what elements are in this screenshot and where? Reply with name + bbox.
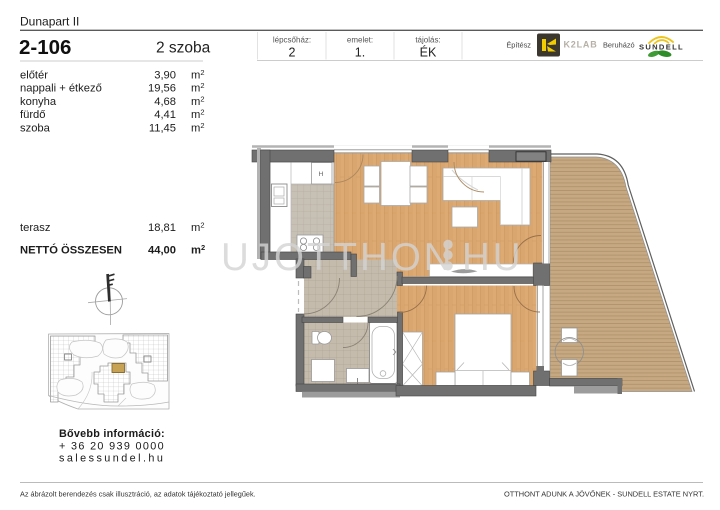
svg-text:OTTHONT ADUNK A JÖVŐNEK - SUND: OTTHONT ADUNK A JÖVŐNEK - SUNDELL ESTATE… xyxy=(504,490,704,499)
svg-text:UJOTTHON: UJOTTHON xyxy=(221,236,455,279)
svg-text:19,56: 19,56 xyxy=(148,83,176,95)
svg-text:K2LAB: K2LAB xyxy=(564,40,598,50)
svg-text:nappali + étkező: nappali + étkező xyxy=(20,83,102,95)
svg-text:ÉK: ÉK xyxy=(420,45,437,60)
svg-text:HU: HU xyxy=(462,236,524,279)
svg-text:Bővebb információ:: Bővebb információ: xyxy=(59,428,165,440)
svg-text:4,68: 4,68 xyxy=(154,96,176,108)
svg-text:Dunapart II: Dunapart II xyxy=(20,15,79,29)
svg-text:SUNDELL: SUNDELL xyxy=(639,43,684,52)
svg-text:emelet:: emelet: xyxy=(347,36,373,45)
svg-text:Beruházó: Beruházó xyxy=(603,41,635,50)
svg-text:2 szoba: 2 szoba xyxy=(156,40,211,57)
svg-text:2: 2 xyxy=(289,46,296,60)
svg-text:terasz: terasz xyxy=(20,222,51,234)
svg-text:lépcsőház:: lépcsőház: xyxy=(273,36,311,45)
svg-text:konyha: konyha xyxy=(20,96,57,108)
svg-text:fürdő: fürdő xyxy=(20,109,46,121)
svg-text:szoba: szoba xyxy=(20,122,51,134)
svg-text:H: H xyxy=(319,171,324,178)
svg-text:2-106: 2-106 xyxy=(19,36,71,59)
svg-text:Építész: Építész xyxy=(506,41,531,50)
svg-text:Az ábrázolt berendezés csak il: Az ábrázolt berendezés csak illusztráció… xyxy=(20,490,256,499)
svg-text:11,45: 11,45 xyxy=(149,122,176,134)
svg-text:44,00: 44,00 xyxy=(148,245,176,257)
svg-text:előtér: előtér xyxy=(20,70,48,82)
svg-text:salessundel.hu: salessundel.hu xyxy=(59,453,165,465)
svg-text:+ 36 20 939 0000: + 36 20 939 0000 xyxy=(59,441,165,453)
svg-text:18,81: 18,81 xyxy=(148,222,176,234)
svg-text:NETTÓ ÖSSZESEN: NETTÓ ÖSSZESEN xyxy=(20,244,122,257)
svg-text:3,90: 3,90 xyxy=(154,70,176,82)
svg-text:4,41: 4,41 xyxy=(154,109,176,121)
svg-text:1.: 1. xyxy=(355,46,365,60)
svg-text:tájolás:: tájolás: xyxy=(415,36,440,45)
